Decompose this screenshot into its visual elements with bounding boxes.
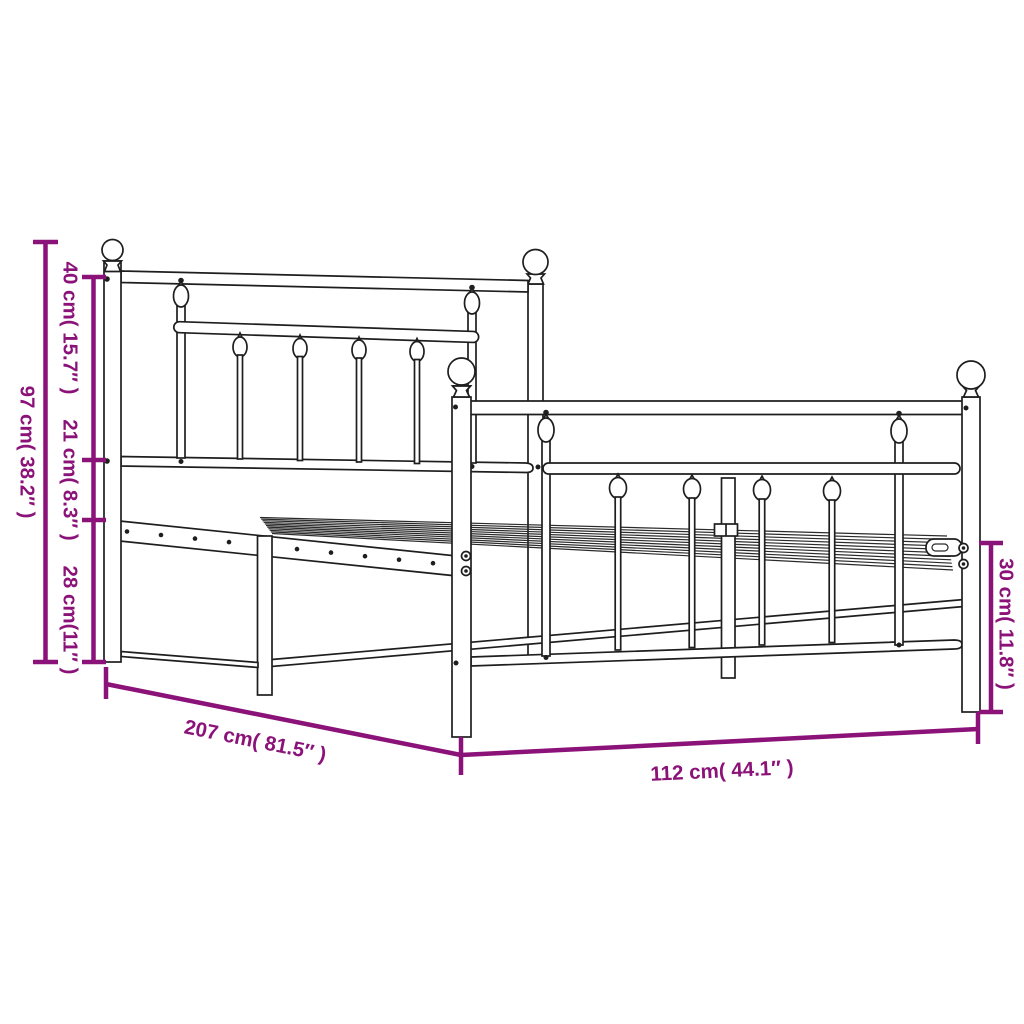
- dimension-label-overall-height: 97 cm( 38.2″ ): [16, 386, 39, 519]
- finial-collar: [453, 386, 471, 397]
- finial-collar: [104, 261, 122, 272]
- footboard-far-post: [957, 361, 985, 712]
- dimension-diagram: 97 cm( 38.2″ ) 40 cm( 15.7″ ) 21 cm( 8.3…: [0, 0, 1024, 1024]
- ball-finial: [523, 250, 548, 275]
- headboard-mid-rail: [174, 322, 479, 343]
- dimension-label-headboard-lower: 21 cm( 8.3″ ): [59, 419, 82, 541]
- dimension-label-clearance: 28 cm(11″ ): [59, 566, 82, 675]
- ball-finial: [957, 361, 985, 389]
- ball-finial: [448, 358, 475, 385]
- headboard-spindles: [233, 333, 424, 464]
- dimension-overall-height: 97 cm( 38.2″ ): [16, 242, 58, 662]
- headboard-near-post: [102, 240, 123, 663]
- far-side-rail-end: [926, 539, 962, 556]
- ball-finial: [102, 240, 123, 261]
- dimension-label-width: 112 cm( 44.1″ ): [650, 756, 794, 786]
- dimension-left-segments: 40 cm( 15.7″ ) 21 cm( 8.3″ ) 28 cm(11″ ): [59, 262, 106, 675]
- dimension-label-footboard-height: 30 cm( 11.8″ ): [995, 558, 1018, 690]
- center-support-leg: [258, 536, 273, 695]
- footboard-mid-rail: [543, 463, 960, 474]
- bed-frame-illustration: 97 cm( 38.2″ ) 40 cm( 15.7″ ) 21 cm( 8.3…: [0, 0, 1024, 1024]
- footboard-near-post: [448, 358, 475, 737]
- dimension-footboard-height: 30 cm( 11.8″ ): [979, 543, 1018, 712]
- finial-collar: [527, 274, 545, 284]
- dimension-annotations: 97 cm( 38.2″ ) 40 cm( 15.7″ ) 21 cm( 8.3…: [16, 242, 1018, 786]
- side-rail: [110, 520, 457, 576]
- dimension-label-headboard-upper: 40 cm( 15.7″ ): [59, 262, 82, 395]
- dimension-length: 207 cm( 81.5″ ): [106, 667, 461, 775]
- dimension-width: 112 cm( 44.1″ ): [461, 712, 978, 786]
- footboard-top-rail: [460, 401, 972, 415]
- bottom-brace-short: [121, 652, 258, 668]
- headboard: [102, 240, 541, 663]
